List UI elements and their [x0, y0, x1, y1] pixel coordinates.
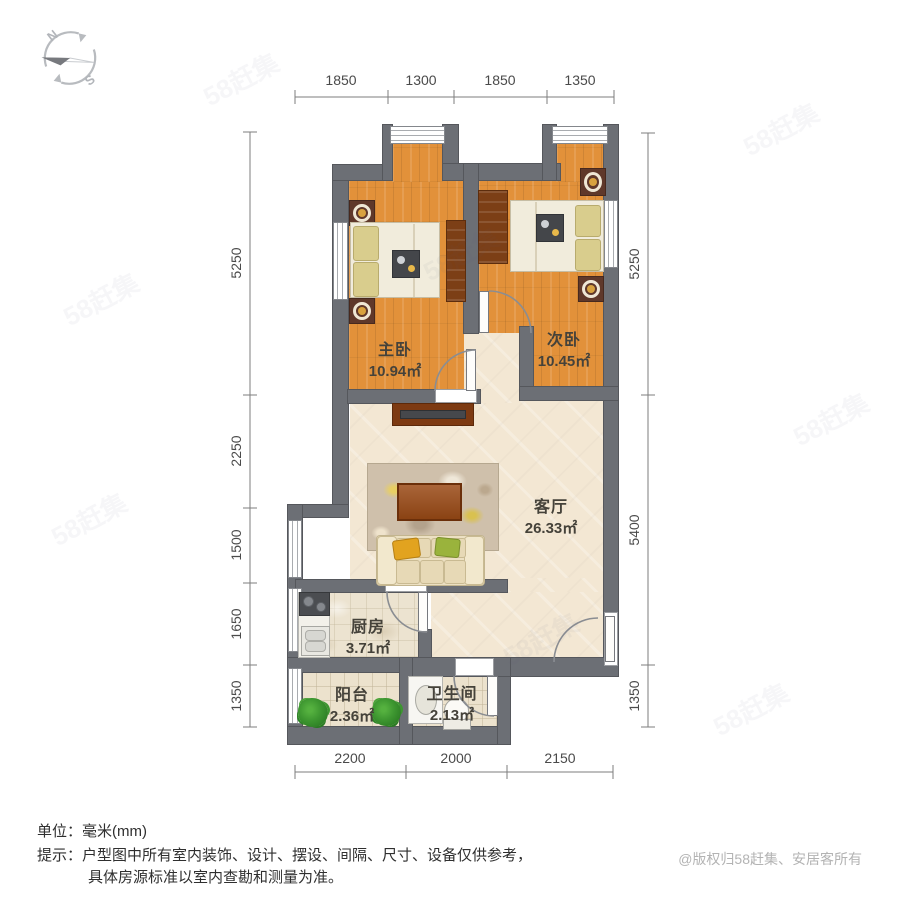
room-label-master: 主卧 10.94㎡: [369, 336, 422, 381]
dimension-line-bottom: [295, 765, 613, 779]
dimension-line-left: [243, 132, 257, 727]
dim-left-2: 2250: [228, 435, 244, 466]
room-name: 主卧: [369, 336, 422, 360]
dim-left-1: 5250: [228, 247, 244, 278]
room-area: 2.13㎡: [426, 704, 477, 725]
tip-line-2: 具体房源标准以室内查勘和测量为准。: [88, 866, 343, 887]
dim-left-4: 1650: [228, 608, 244, 639]
room-name: 客厅: [525, 493, 578, 517]
dimension-line-right: [641, 133, 655, 727]
compass-south-label: S: [82, 71, 98, 88]
entry-door-arc: [554, 618, 598, 662]
room-name: 次卧: [538, 326, 591, 350]
kitchen-door-arc: [387, 592, 427, 632]
dim-right-1: 5250: [626, 248, 642, 279]
compass-icon: N S: [27, 13, 114, 104]
room-area: 2.36㎡: [330, 705, 374, 726]
tip-line-1: 提示：户型图中所有室内装饰、设计、摆设、间隔、尺寸、设备仅供参考，: [37, 844, 532, 865]
dim-top-4: 1350: [564, 72, 595, 88]
room-label-kitchen: 厨房 3.71㎡: [346, 613, 390, 658]
room-name: 阳台: [330, 681, 374, 705]
dim-left-5: 1350: [228, 680, 244, 711]
dim-right-2: 5400: [626, 514, 642, 545]
compass-north-label: N: [44, 27, 61, 45]
dim-bottom-2: 2000: [440, 750, 471, 766]
room-label-living: 客厅 26.33㎡: [525, 493, 578, 538]
room-area: 26.33㎡: [525, 517, 578, 538]
dim-right-3: 1350: [626, 680, 642, 711]
dim-left-3: 1500: [228, 529, 244, 560]
room-label-balcony: 阳台 2.36㎡: [330, 681, 374, 726]
dimension-line-top: [295, 90, 614, 104]
second-door-arc: [489, 291, 531, 333]
unit-note: 单位：毫米(mm): [37, 820, 147, 841]
room-area: 3.71㎡: [346, 637, 390, 658]
dim-bottom-1: 2200: [334, 750, 365, 766]
room-label-second: 次卧 10.45㎡: [538, 326, 591, 371]
room-label-bathroom: 卫生间 2.13㎡: [426, 680, 477, 725]
room-name: 卫生间: [426, 680, 477, 704]
dim-top-1: 1850: [325, 72, 356, 88]
copyright-text: @版权归58赶集、安居客所有: [678, 849, 862, 869]
room-area: 10.94㎡: [369, 360, 422, 381]
master-door-arc: [435, 350, 476, 391]
floorplan-page: N S 主卧 10.94㎡ 次卧 10.45㎡ 客厅 26.33㎡ 厨房 3.7…: [0, 0, 900, 900]
room-area: 10.45㎡: [538, 350, 591, 371]
dim-top-2: 1300: [405, 72, 436, 88]
dim-bottom-3: 2150: [544, 750, 575, 766]
room-name: 厨房: [346, 613, 390, 637]
dim-top-3: 1850: [484, 72, 515, 88]
